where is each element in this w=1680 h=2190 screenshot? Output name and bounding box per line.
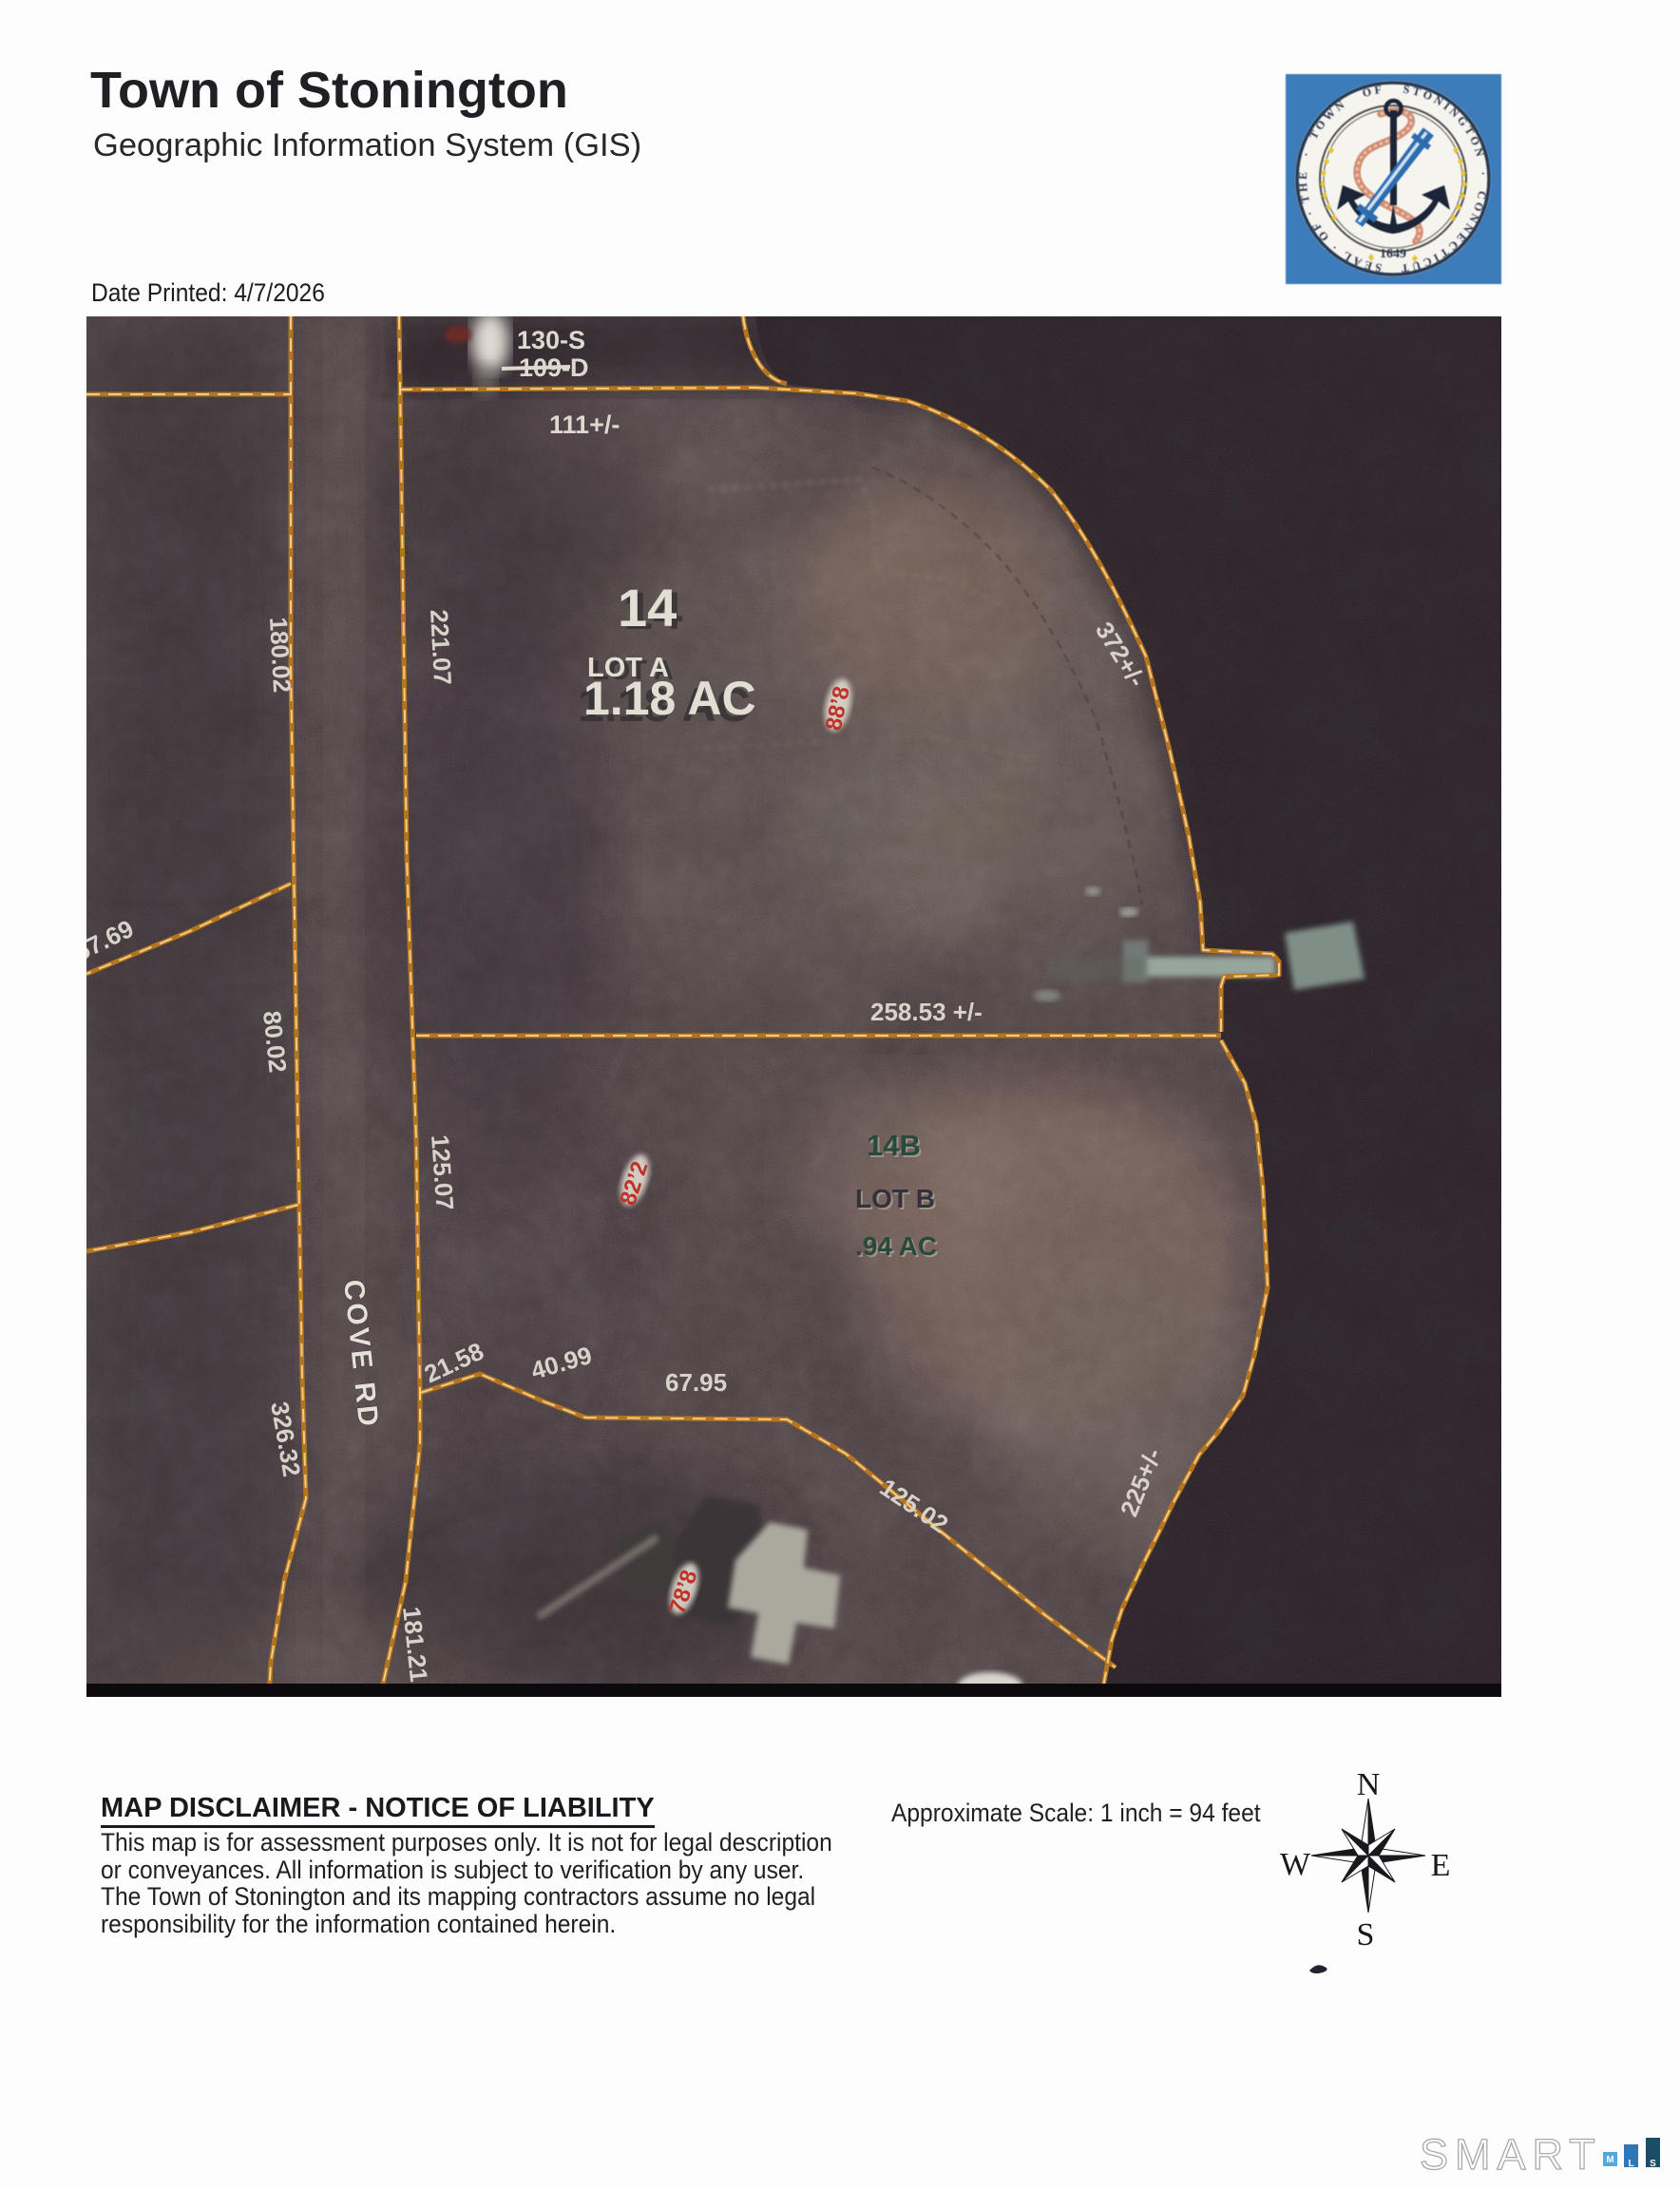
svg-text:E: E — [1431, 1848, 1451, 1883]
svg-text:180.02: 180.02 — [264, 617, 296, 694]
svg-text:W: W — [1280, 1847, 1311, 1882]
svg-text:14B: 14B — [867, 1129, 921, 1162]
svg-text:N: N — [1357, 1767, 1381, 1802]
svg-text:14: 14 — [618, 578, 677, 638]
svg-text:111+/-: 111+/- — [549, 410, 620, 439]
svg-text:.94 AC: .94 AC — [855, 1231, 937, 1261]
svg-text:S: S — [1357, 1917, 1375, 1952]
svg-text:1649: 1649 — [1380, 247, 1406, 261]
svg-text:221.07: 221.07 — [425, 609, 457, 686]
svg-text:LOT B: LOT B — [855, 1184, 935, 1213]
svg-text:130-S: 130-S — [517, 326, 585, 354]
svg-text:258.53 +/-: 258.53 +/- — [870, 998, 983, 1026]
svg-text:67.95: 67.95 — [665, 1368, 727, 1397]
svg-text:1.18 AC: 1.18 AC — [583, 672, 756, 725]
svg-text:125.07: 125.07 — [426, 1133, 459, 1210]
